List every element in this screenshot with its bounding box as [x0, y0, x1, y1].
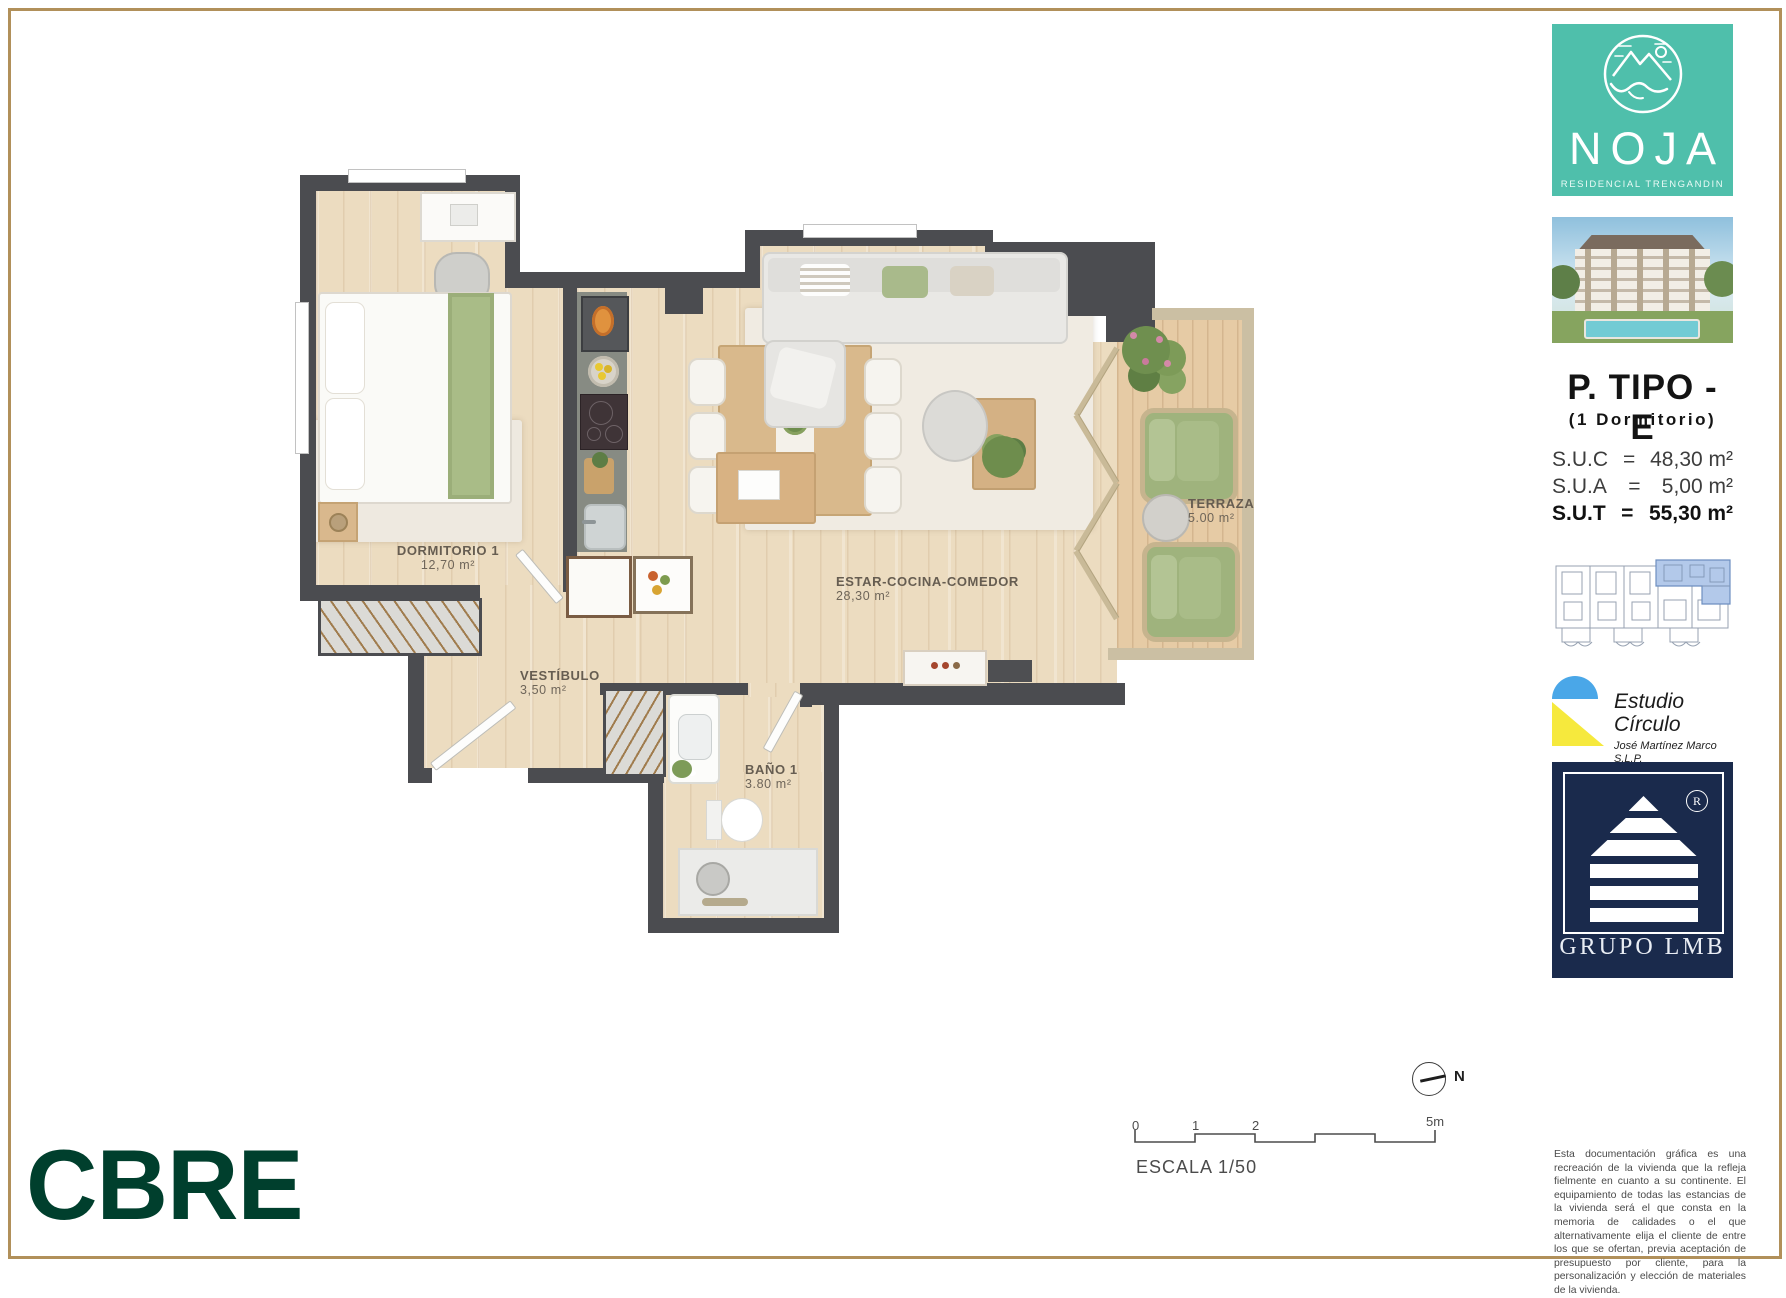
kitchen-cooktop [580, 394, 628, 450]
kitchen-cutting-board [584, 458, 614, 494]
scale-tick-2: 2 [1252, 1118, 1259, 1133]
terrace-armchair-2 [1142, 542, 1240, 642]
noja-emblem-icon [1599, 32, 1687, 116]
chaise-lounge [764, 340, 846, 428]
wall-bath-left [648, 770, 663, 933]
room-name: VESTÍBULO [520, 668, 600, 683]
wall-bath-bottom [648, 918, 839, 933]
area-table: S.U.C = 48,30 m² S.U.A = 5,00 m² S.U.T =… [1552, 446, 1733, 527]
area-label: S.U.T [1552, 500, 1606, 527]
sofa [762, 252, 1068, 344]
sofa-pillow-pattern [950, 266, 994, 296]
grupo-lmb-logo: R GRUPO LMB [1552, 762, 1733, 978]
nightstand [318, 502, 358, 542]
disclaimer-text: Esta documentación gráfica es una recrea… [1554, 1148, 1746, 1298]
cbre-logo: CBRE [26, 1128, 303, 1242]
room-area: 12,70 m² [383, 558, 513, 573]
room-area: 28,30 m² [836, 589, 1019, 604]
noja-logo-tile: NOJA RESIDENCIAL TRENGANDIN [1552, 24, 1733, 196]
terrace-side-table [1142, 494, 1190, 542]
wall-bath-right [824, 695, 839, 933]
area-row-sut: S.U.T = 55,30 m² [1552, 500, 1733, 527]
tv-bench [988, 660, 1032, 682]
window-living-top [803, 224, 917, 238]
kitchen-oven [581, 296, 629, 352]
area-eq: = [1621, 500, 1633, 527]
area-value: 55,30 m² [1649, 500, 1733, 527]
estudio-logo-icon [1552, 676, 1604, 748]
hall-wardrobe [318, 598, 482, 656]
kitchen-appliance-2 [633, 556, 693, 614]
floorplan: DORMITORIO 1 12,70 m² VESTÍBULO 3,50 m² … [0, 0, 1350, 1100]
toilet [706, 798, 762, 840]
room-name: TERRAZA [1188, 496, 1254, 511]
room-label-estar: ESTAR-COCINA-COMEDOR 28,30 m² [836, 574, 1019, 604]
north-arrow-icon: N [1412, 1062, 1482, 1098]
area-row-sua: S.U.A = 5,00 m² [1552, 473, 1733, 500]
area-label: S.U.A [1552, 473, 1607, 500]
sofa-pillow-striped [800, 264, 850, 296]
dining-chair [864, 412, 902, 460]
room-area: 5.00 m² [1188, 511, 1254, 526]
room-label-dormitorio: DORMITORIO 1 12,70 m² [383, 543, 513, 573]
scale-caption: ESCALA 1/50 [1136, 1157, 1257, 1178]
area-eq: = [1628, 473, 1640, 500]
bed-pillow [325, 398, 365, 490]
scale-tick-0: 0 [1132, 1118, 1139, 1133]
plan-type-subtitle: (1 Dormitorio) [1552, 410, 1733, 430]
desk [420, 192, 516, 242]
dining-chair [688, 358, 726, 406]
bath-wardrobe [603, 688, 666, 777]
wall-living-bottom [805, 683, 1125, 705]
wall-vestibule-left [408, 650, 424, 783]
wall-kitchen-notch [665, 288, 703, 314]
bed-pillow [325, 302, 365, 394]
noja-name: NOJA [1552, 123, 1733, 175]
noja-subtitle: RESIDENCIAL TRENGANDIN [1552, 179, 1733, 190]
room-area: 3,50 m² [520, 683, 600, 698]
kitchen-fruit-bowl [588, 356, 619, 387]
kitchen-sink [584, 504, 626, 550]
wall-kitchen-divider [563, 272, 577, 592]
terrace-rail-bottom [1108, 648, 1254, 660]
wall-kitchen-top [505, 272, 757, 288]
room-name: DORMITORIO 1 [397, 543, 499, 558]
room-name: BAÑO 1 [745, 762, 798, 777]
dining-chair [864, 466, 902, 514]
window-bedroom-top [348, 169, 466, 183]
terrace-plant [1122, 326, 1170, 374]
key-plan [1552, 556, 1733, 660]
estudio-circulo-block: Estudio Círculo José Martínez Marco S.L.… [1552, 676, 1733, 750]
area-value: 48,30 m² [1650, 446, 1733, 473]
terrace-rail-top [1152, 308, 1254, 320]
terrace-rail-right [1242, 308, 1254, 660]
sideboard [903, 650, 987, 686]
coffee-table [716, 452, 816, 524]
scale-bar [1134, 1112, 1446, 1154]
lounge-pouf [922, 390, 988, 462]
registered-icon: R [1686, 790, 1708, 812]
plan-type-title: P. TIPO - E [1552, 368, 1733, 448]
room-label-terraza: TERRAZA 5.00 m² [1188, 496, 1254, 526]
estudio-name: Estudio Círculo [1614, 690, 1734, 736]
kitchen-appliance-1 [566, 556, 632, 618]
shower [678, 848, 818, 916]
area-eq: = [1623, 446, 1635, 473]
sofa-pillow-green [882, 266, 928, 298]
room-label-bano: BAÑO 1 3.80 m² [745, 762, 798, 792]
terrace-armchair-1 [1140, 408, 1238, 504]
bed-blanket [448, 293, 494, 499]
room-name: ESTAR-COCINA-COMEDOR [836, 574, 1019, 589]
area-value: 5,00 m² [1662, 473, 1733, 500]
bath-washbasin [668, 694, 720, 784]
wall-vestibule-bottom-a [408, 768, 432, 783]
pool [1584, 319, 1700, 339]
area-row-suc: S.U.C = 48,30 m² [1552, 446, 1733, 473]
area-label: S.U.C [1552, 446, 1608, 473]
scale-tick-1: 1 [1192, 1118, 1199, 1133]
room-area: 3.80 m² [745, 777, 798, 792]
grupo-lmb-name: GRUPO LMB [1552, 934, 1733, 961]
scale-tick-5m: 5m [1426, 1114, 1444, 1129]
grupo-lmb-pyramid-icon: R [1563, 772, 1724, 934]
tree [1704, 261, 1733, 297]
window-bedroom-left [295, 302, 309, 454]
room-label-vestibulo: VESTÍBULO 3,50 m² [520, 668, 600, 698]
north-label: N [1454, 1068, 1465, 1085]
bed [318, 292, 512, 504]
dining-chair [864, 358, 902, 406]
building-photo [1552, 217, 1733, 343]
